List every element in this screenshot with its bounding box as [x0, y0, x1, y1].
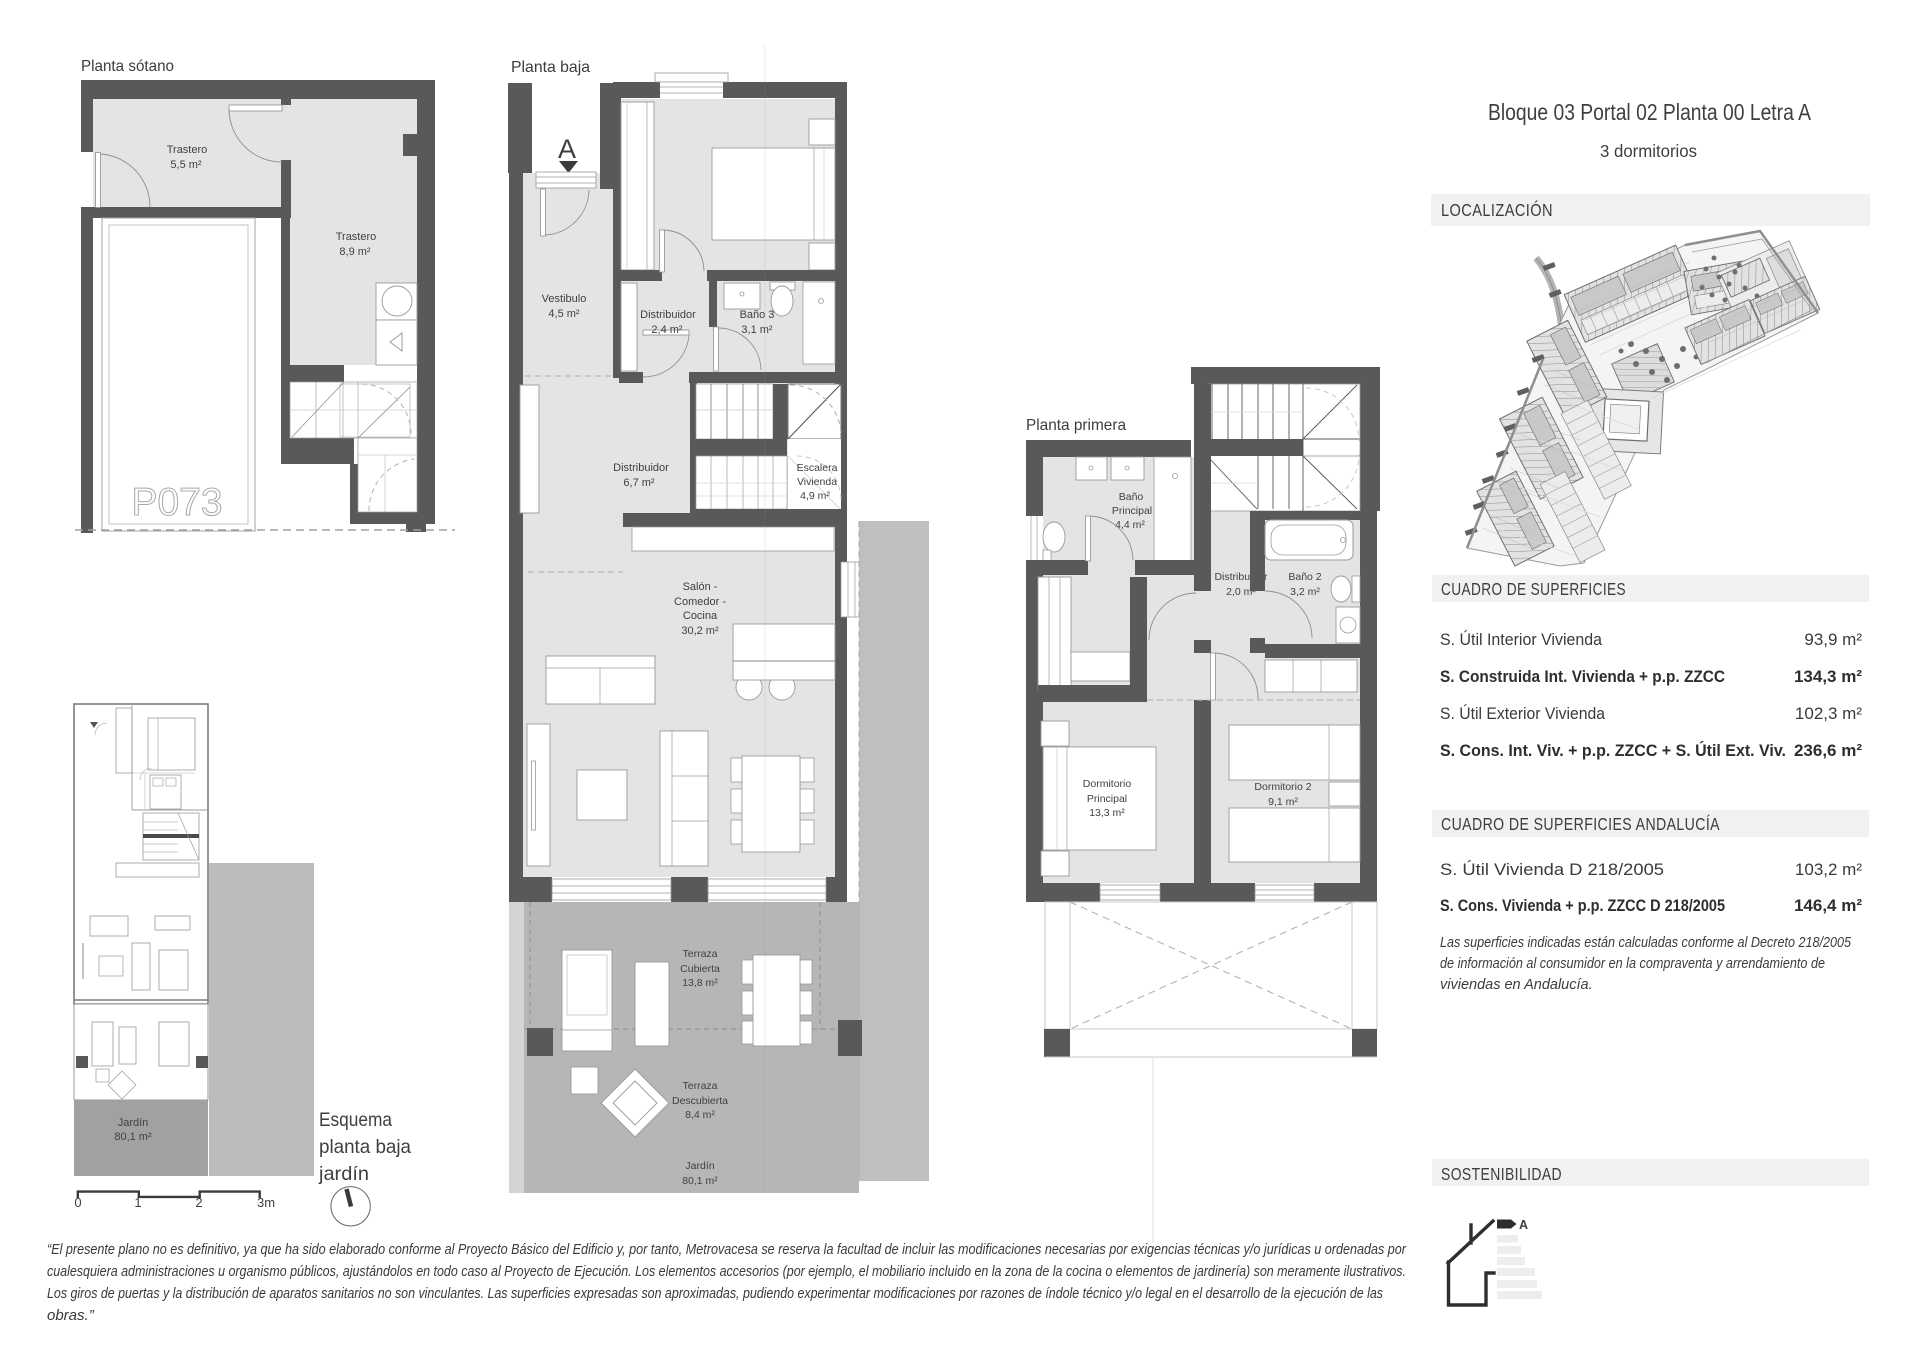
svg-text:LOCALIZACIÓN: LOCALIZACIÓN	[1441, 199, 1553, 220]
svg-text:Terraza: Terraza	[682, 948, 717, 960]
svg-text:102,3 m²: 102,3 m²	[1795, 704, 1862, 723]
svg-text:Principal: Principal	[1112, 505, 1152, 517]
svg-text:0: 0	[74, 1195, 81, 1210]
svg-text:Trastero: Trastero	[336, 231, 377, 243]
svg-text:CUADRO DE SUPERFICIES: CUADRO DE SUPERFICIES	[1441, 579, 1626, 599]
svg-text:Salón -: Salón -	[683, 581, 718, 593]
svg-text:Principal: Principal	[1087, 793, 1127, 805]
svg-text:jardín: jardín	[318, 1163, 369, 1185]
svg-text:Terraza: Terraza	[682, 1080, 717, 1092]
svg-text:Planta sótano: Planta sótano	[81, 58, 174, 75]
svg-text:S. Útil Exterior Vivienda: S. Útil Exterior Vivienda	[1440, 704, 1605, 723]
svg-text:Vestibulo: Vestibulo	[542, 293, 587, 305]
svg-text:viviendas en Andalucía.: viviendas en Andalucía.	[1440, 977, 1593, 993]
svg-text:Distribuidor: Distribuidor	[613, 462, 669, 474]
svg-text:103,2 m²: 103,2 m²	[1795, 860, 1862, 879]
svg-text:Planta baja: Planta baja	[511, 59, 590, 76]
svg-text:Trastero: Trastero	[167, 144, 208, 156]
svg-text:4,5 m²: 4,5 m²	[548, 308, 580, 320]
svg-text:4,9 m²: 4,9 m²	[800, 490, 830, 502]
svg-text:5,5 m²: 5,5 m²	[170, 159, 202, 171]
svg-text:S. Útil Vivienda D 218/2005: S. Útil Vivienda D 218/2005	[1440, 860, 1664, 879]
svg-text:236,6 m²: 236,6 m²	[1794, 741, 1862, 760]
svg-text:2,4 m²: 2,4 m²	[651, 324, 683, 336]
svg-text:A: A	[558, 134, 576, 164]
svg-text:1: 1	[134, 1195, 141, 1210]
svg-text:Descubierta: Descubierta	[672, 1095, 728, 1107]
svg-text:S. Cons. Vivienda + p.p. ZZCC: S. Cons. Vivienda + p.p. ZZCC D 218/2005	[1440, 896, 1725, 915]
svg-text:3 dormitorios: 3 dormitorios	[1600, 141, 1697, 161]
svg-text:30,2 m²: 30,2 m²	[681, 625, 719, 637]
svg-text:planta baja: planta baja	[319, 1136, 411, 1158]
svg-text:S. Cons. Int. Viv. + p.p. ZZCC: S. Cons. Int. Viv. + p.p. ZZCC + S. Útil…	[1440, 741, 1786, 760]
svg-text:Jardín: Jardín	[685, 1160, 714, 1172]
svg-text:P073: P073	[131, 481, 222, 524]
svg-text:3m: 3m	[257, 1195, 275, 1210]
svg-text:S. Útil Interior Vivienda: S. Útil Interior Vivienda	[1440, 630, 1603, 649]
svg-text:6,7 m²: 6,7 m²	[623, 477, 655, 489]
svg-text:13,3 m²: 13,3 m²	[1089, 807, 1125, 819]
svg-text:Los giros de puertas y la dist: Los giros de puertas y la distribución d…	[47, 1285, 1383, 1302]
svg-text:134,3 m²: 134,3 m²	[1794, 667, 1862, 686]
svg-text:Escalera: Escalera	[797, 462, 838, 474]
svg-text:“El presente plano no es defin: “El presente plano no es definitivo, ya …	[47, 1241, 1407, 1258]
svg-text:CUADRO DE SUPERFICIES ANDALUCÍ: CUADRO DE SUPERFICIES ANDALUCÍA	[1441, 814, 1720, 834]
svg-text:2: 2	[195, 1195, 202, 1210]
svg-text:S. Construida Int. Vivienda +: S. Construida Int. Vivienda + p.p. ZZCC	[1440, 667, 1725, 686]
svg-text:Baño: Baño	[1119, 491, 1144, 503]
svg-text:Dormitorio 2: Dormitorio 2	[1254, 781, 1311, 793]
svg-text:Las superficies indicadas está: Las superficies indicadas están calculad…	[1440, 935, 1852, 951]
svg-text:SOSTENIBILIDAD: SOSTENIBILIDAD	[1441, 1164, 1562, 1184]
svg-text:Distribuidor: Distribuidor	[640, 309, 696, 321]
svg-text:3,2 m²: 3,2 m²	[1290, 586, 1320, 598]
svg-text:obras.”: obras.”	[47, 1307, 95, 1324]
svg-text:80,1 m²: 80,1 m²	[114, 1131, 152, 1143]
svg-text:Cocina: Cocina	[683, 610, 718, 622]
svg-text:de información al consumidor e: de información al consumidor en la compr…	[1440, 956, 1825, 972]
svg-text:Cubierta: Cubierta	[680, 963, 720, 975]
svg-text:Bloque 03 Portal 02 Planta 00: Bloque 03 Portal 02 Planta 00 Letra A	[1488, 99, 1812, 125]
svg-text:Baño 3: Baño 3	[740, 309, 775, 321]
svg-text:Esquema: Esquema	[319, 1109, 392, 1131]
svg-text:8,9 m²: 8,9 m²	[339, 246, 371, 258]
svg-text:Vivienda: Vivienda	[797, 476, 837, 488]
svg-text:13,8 m²: 13,8 m²	[682, 977, 718, 989]
svg-text:Jardín: Jardín	[118, 1117, 149, 1129]
svg-text:3,1 m²: 3,1 m²	[741, 324, 773, 336]
svg-text:Dormitorio: Dormitorio	[1083, 778, 1132, 790]
svg-text:Planta primera: Planta primera	[1026, 417, 1126, 434]
svg-text:93,9 m²: 93,9 m²	[1804, 630, 1862, 649]
svg-text:cualesquiera administraciones: cualesquiera administraciones u organism…	[47, 1263, 1406, 1280]
svg-text:A: A	[1519, 1218, 1528, 1232]
svg-text:Baño 2: Baño 2	[1288, 571, 1321, 583]
svg-text:146,4 m²: 146,4 m²	[1794, 896, 1862, 915]
svg-text:9,1 m²: 9,1 m²	[1268, 796, 1298, 808]
svg-text:Comedor -: Comedor -	[674, 596, 726, 608]
svg-text:8,4 m²: 8,4 m²	[685, 1109, 715, 1121]
svg-text:80,1 m²: 80,1 m²	[682, 1175, 718, 1187]
